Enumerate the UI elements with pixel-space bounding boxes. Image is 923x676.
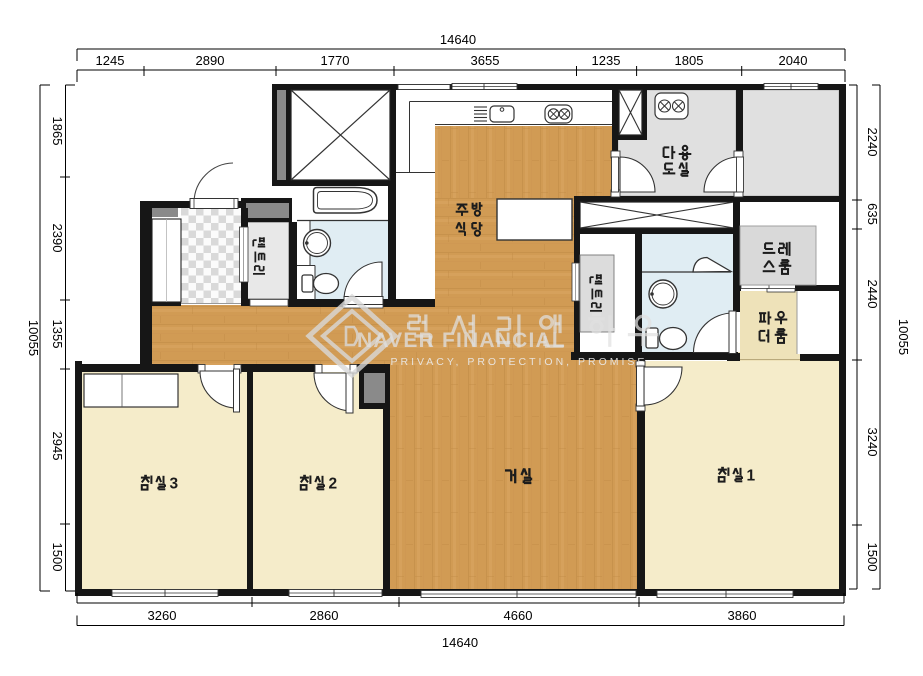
svg-text:1770: 1770 (321, 53, 350, 68)
svg-text:4660: 4660 (504, 608, 533, 623)
svg-text:10055: 10055 (896, 319, 911, 355)
svg-text:1245: 1245 (96, 53, 125, 68)
svg-text:3260: 3260 (148, 608, 177, 623)
svg-text:3240: 3240 (865, 428, 880, 457)
svg-text:2390: 2390 (50, 224, 65, 253)
svg-text:14640: 14640 (442, 635, 478, 650)
svg-text:1: 1 (747, 468, 756, 485)
svg-text:1355: 1355 (50, 320, 65, 349)
svg-text:14640: 14640 (440, 32, 476, 47)
svg-text:2890: 2890 (196, 53, 225, 68)
svg-text:3860: 3860 (728, 608, 757, 623)
svg-text:1235: 1235 (592, 53, 621, 68)
svg-text:1805: 1805 (675, 53, 704, 68)
svg-text:2860: 2860 (310, 608, 339, 623)
svg-text:1500: 1500 (50, 543, 65, 572)
svg-text:3: 3 (170, 476, 179, 493)
svg-text:NAVER FINANCIAL: NAVER FINANCIAL (357, 329, 566, 352)
svg-text:PRIVACY, PROTECTION, PROMISE: PRIVACY, PROTECTION, PROMISE (391, 356, 648, 368)
svg-text:2945: 2945 (50, 432, 65, 461)
svg-text:1500: 1500 (865, 543, 880, 572)
svg-text:1865: 1865 (50, 117, 65, 146)
svg-text:2240: 2240 (865, 128, 880, 157)
svg-text:2440: 2440 (865, 280, 880, 309)
svg-text:635: 635 (865, 203, 880, 225)
svg-text:2: 2 (329, 476, 338, 493)
svg-text:10055: 10055 (26, 320, 41, 356)
svg-text:2040: 2040 (779, 53, 808, 68)
svg-text:3655: 3655 (471, 53, 500, 68)
